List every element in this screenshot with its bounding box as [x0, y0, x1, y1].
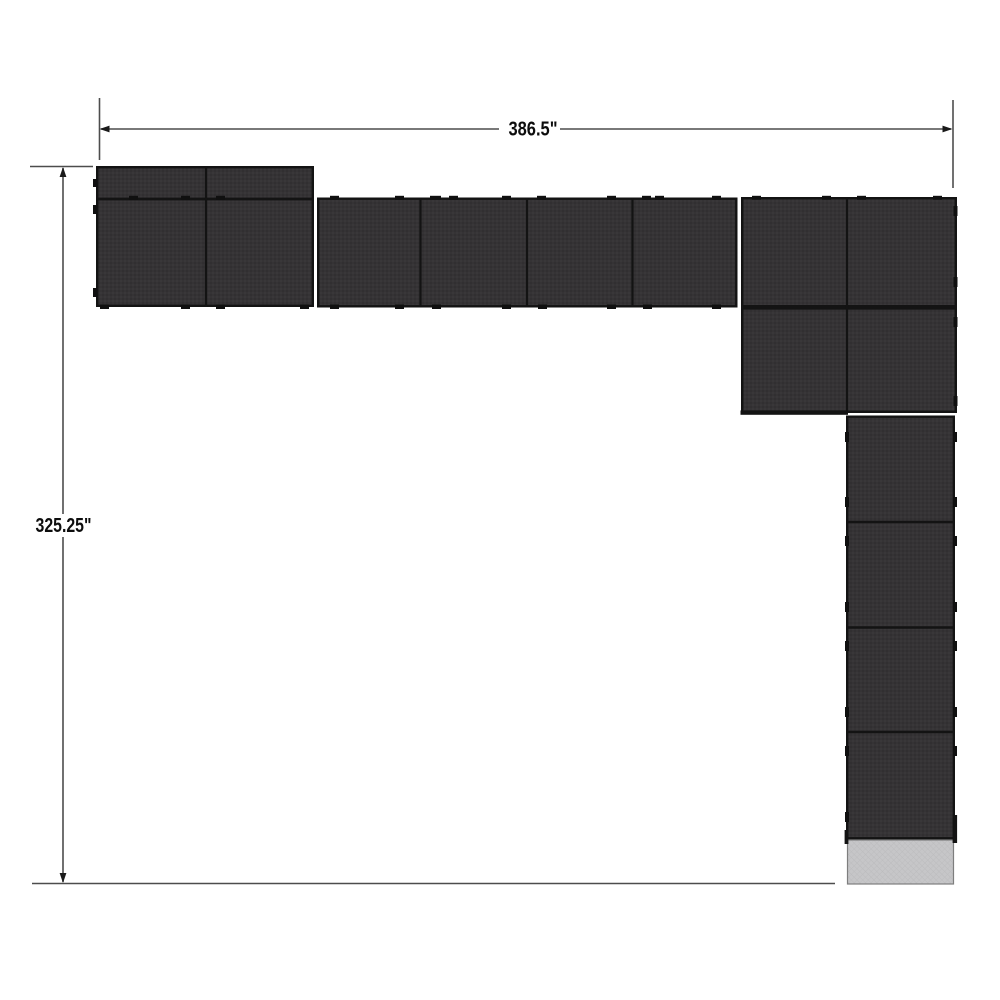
svg-text:386.5": 386.5" [509, 119, 558, 141]
svg-text:325.25": 325.25" [36, 515, 92, 537]
